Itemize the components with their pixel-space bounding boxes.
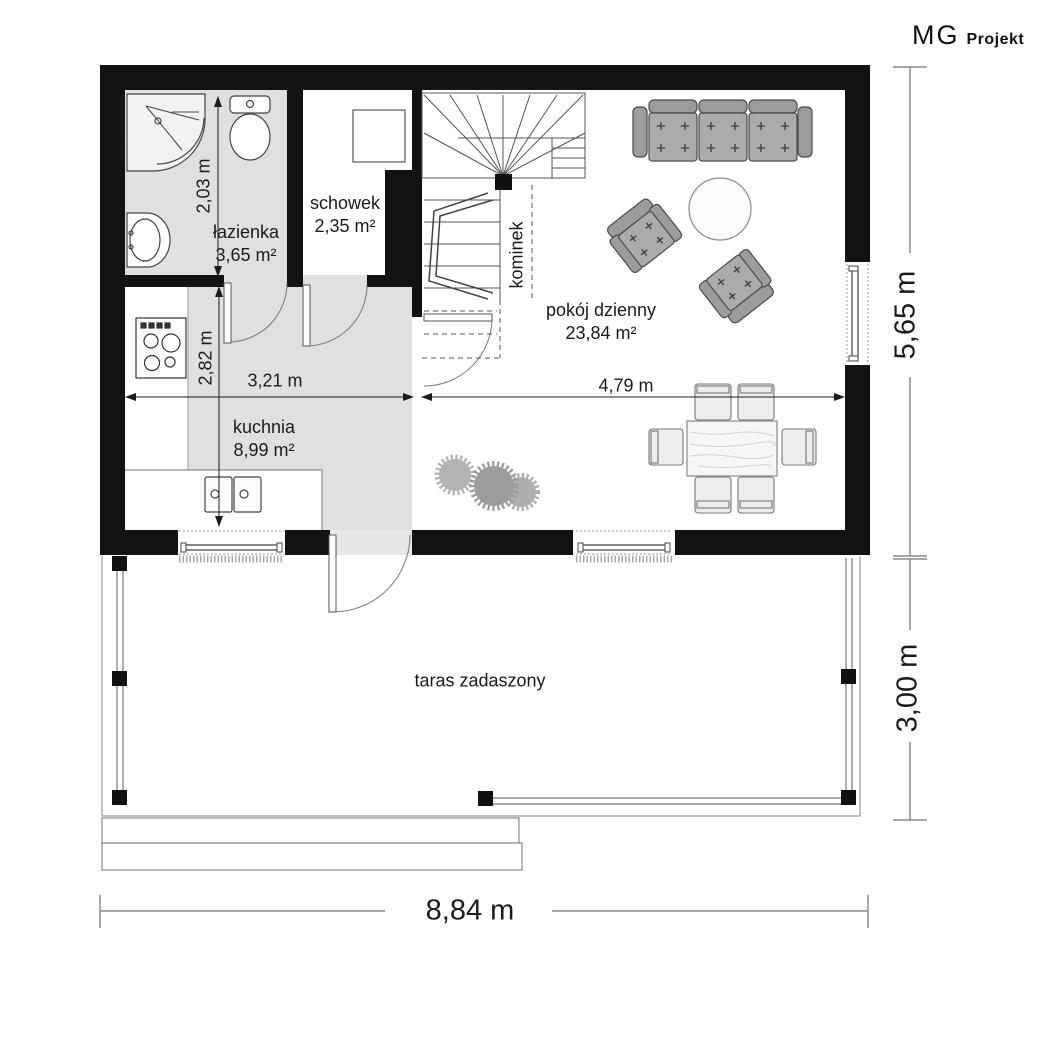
- label-bathroom-area: 3,65 m²: [213, 244, 279, 267]
- coffee-table: [689, 178, 751, 240]
- stairs: [422, 93, 585, 300]
- chimney-block: [385, 170, 412, 287]
- brand-logo-projekt: Projekt: [967, 31, 1025, 49]
- brand-logo-mg: MG: [912, 20, 960, 51]
- stove: [136, 318, 186, 378]
- dining-table: [687, 421, 777, 476]
- label-kitchen-name: kuchnia: [233, 416, 295, 439]
- terrace-steps: [102, 818, 522, 870]
- dim-kitchen-depth: 2,82 m: [196, 330, 217, 385]
- bathroom-sink: [127, 213, 170, 267]
- stair-railing: [429, 193, 493, 299]
- door-living-room: [424, 314, 492, 386]
- dim-living-width: 4,79 m: [598, 376, 653, 397]
- label-kitchen: kuchnia 8,99 m²: [233, 416, 295, 462]
- label-storage-area: 2,35 m²: [310, 215, 380, 238]
- window-living: [576, 531, 672, 559]
- label-kitchen-area: 8,99 m²: [233, 439, 295, 462]
- dim-house-depth: 5,65 m: [890, 271, 923, 360]
- armchair-1: [602, 194, 683, 274]
- toilet: [230, 96, 270, 160]
- label-bathroom: łazienka 3,65 m²: [213, 221, 279, 267]
- label-living-room-area: 23,84 m²: [546, 322, 656, 345]
- label-living-room-name: pokój dzienny: [546, 299, 656, 322]
- dim-bathroom-depth: 2,03 m: [194, 158, 215, 213]
- dim-house-width: 8,84 m: [426, 895, 515, 928]
- floor-plan-canvas: [0, 0, 1050, 1050]
- window-kitchen: [179, 531, 284, 559]
- label-bathroom-name: łazienka: [213, 221, 279, 244]
- sofa: [633, 100, 812, 161]
- window-side: [847, 264, 868, 363]
- kitchen-sink: [205, 477, 261, 512]
- label-storage: schowek 2,35 m²: [310, 192, 380, 238]
- label-fireplace: kominek: [506, 221, 529, 288]
- label-living-room: pokój dzienny 23,84 m²: [546, 299, 656, 345]
- label-storage-name: schowek: [310, 192, 380, 215]
- hall-kitchen-floor: [125, 275, 412, 555]
- dim-kitchen-width: 3,21 m: [247, 371, 302, 392]
- armchair-2: [698, 248, 779, 328]
- fireplace: [495, 174, 512, 190]
- storage-duct: [353, 110, 405, 162]
- floor-plan: MG Projekt łazienka 3,65 m² schowek 2,35…: [0, 0, 1050, 1050]
- plants: [439, 459, 536, 507]
- dim-terrace-depth: 3,00 m: [892, 644, 925, 733]
- brand-logo: MG Projekt: [912, 20, 1024, 51]
- label-terrace: taras zadaszony: [414, 670, 545, 693]
